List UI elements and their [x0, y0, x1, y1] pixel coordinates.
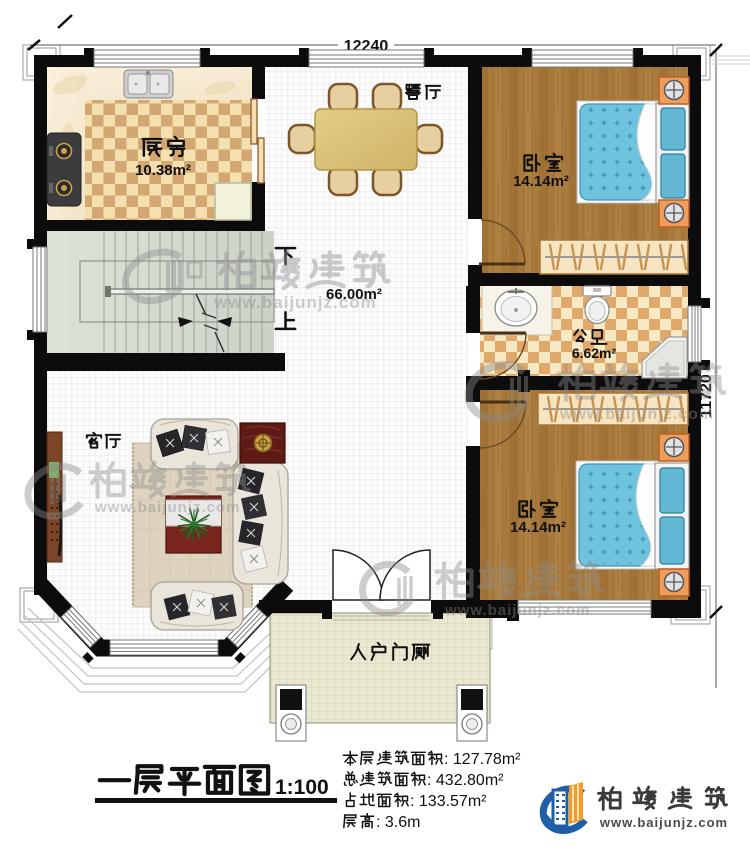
svg-text:www.baijunjz.com: www.baijunjz.com — [599, 815, 728, 830]
svg-text:10.38m²: 10.38m² — [135, 162, 191, 179]
svg-text:www.baijunjz.com: www.baijunjz.com — [559, 406, 714, 423]
svg-text:: 432.80m²: : 432.80m² — [427, 772, 504, 789]
svg-text:: 3.6m: : 3.6m — [376, 814, 420, 831]
svg-text:www.baijunjz.com: www.baijunjz.com — [213, 293, 377, 312]
svg-text:6.62m²: 6.62m² — [572, 345, 617, 361]
svg-text:www.baijunjz.com: www.baijunjz.com — [94, 499, 240, 516]
svg-text:www.baijunjz.com: www.baijunjz.com — [444, 602, 590, 619]
svg-text:1:100: 1:100 — [275, 776, 329, 799]
svg-text:14.14m²: 14.14m² — [513, 173, 569, 190]
svg-text:14.14m²: 14.14m² — [510, 519, 566, 536]
svg-text:: 133.57m²: : 133.57m² — [410, 793, 487, 810]
svg-text:: 127.78m²: : 127.78m² — [444, 751, 521, 768]
